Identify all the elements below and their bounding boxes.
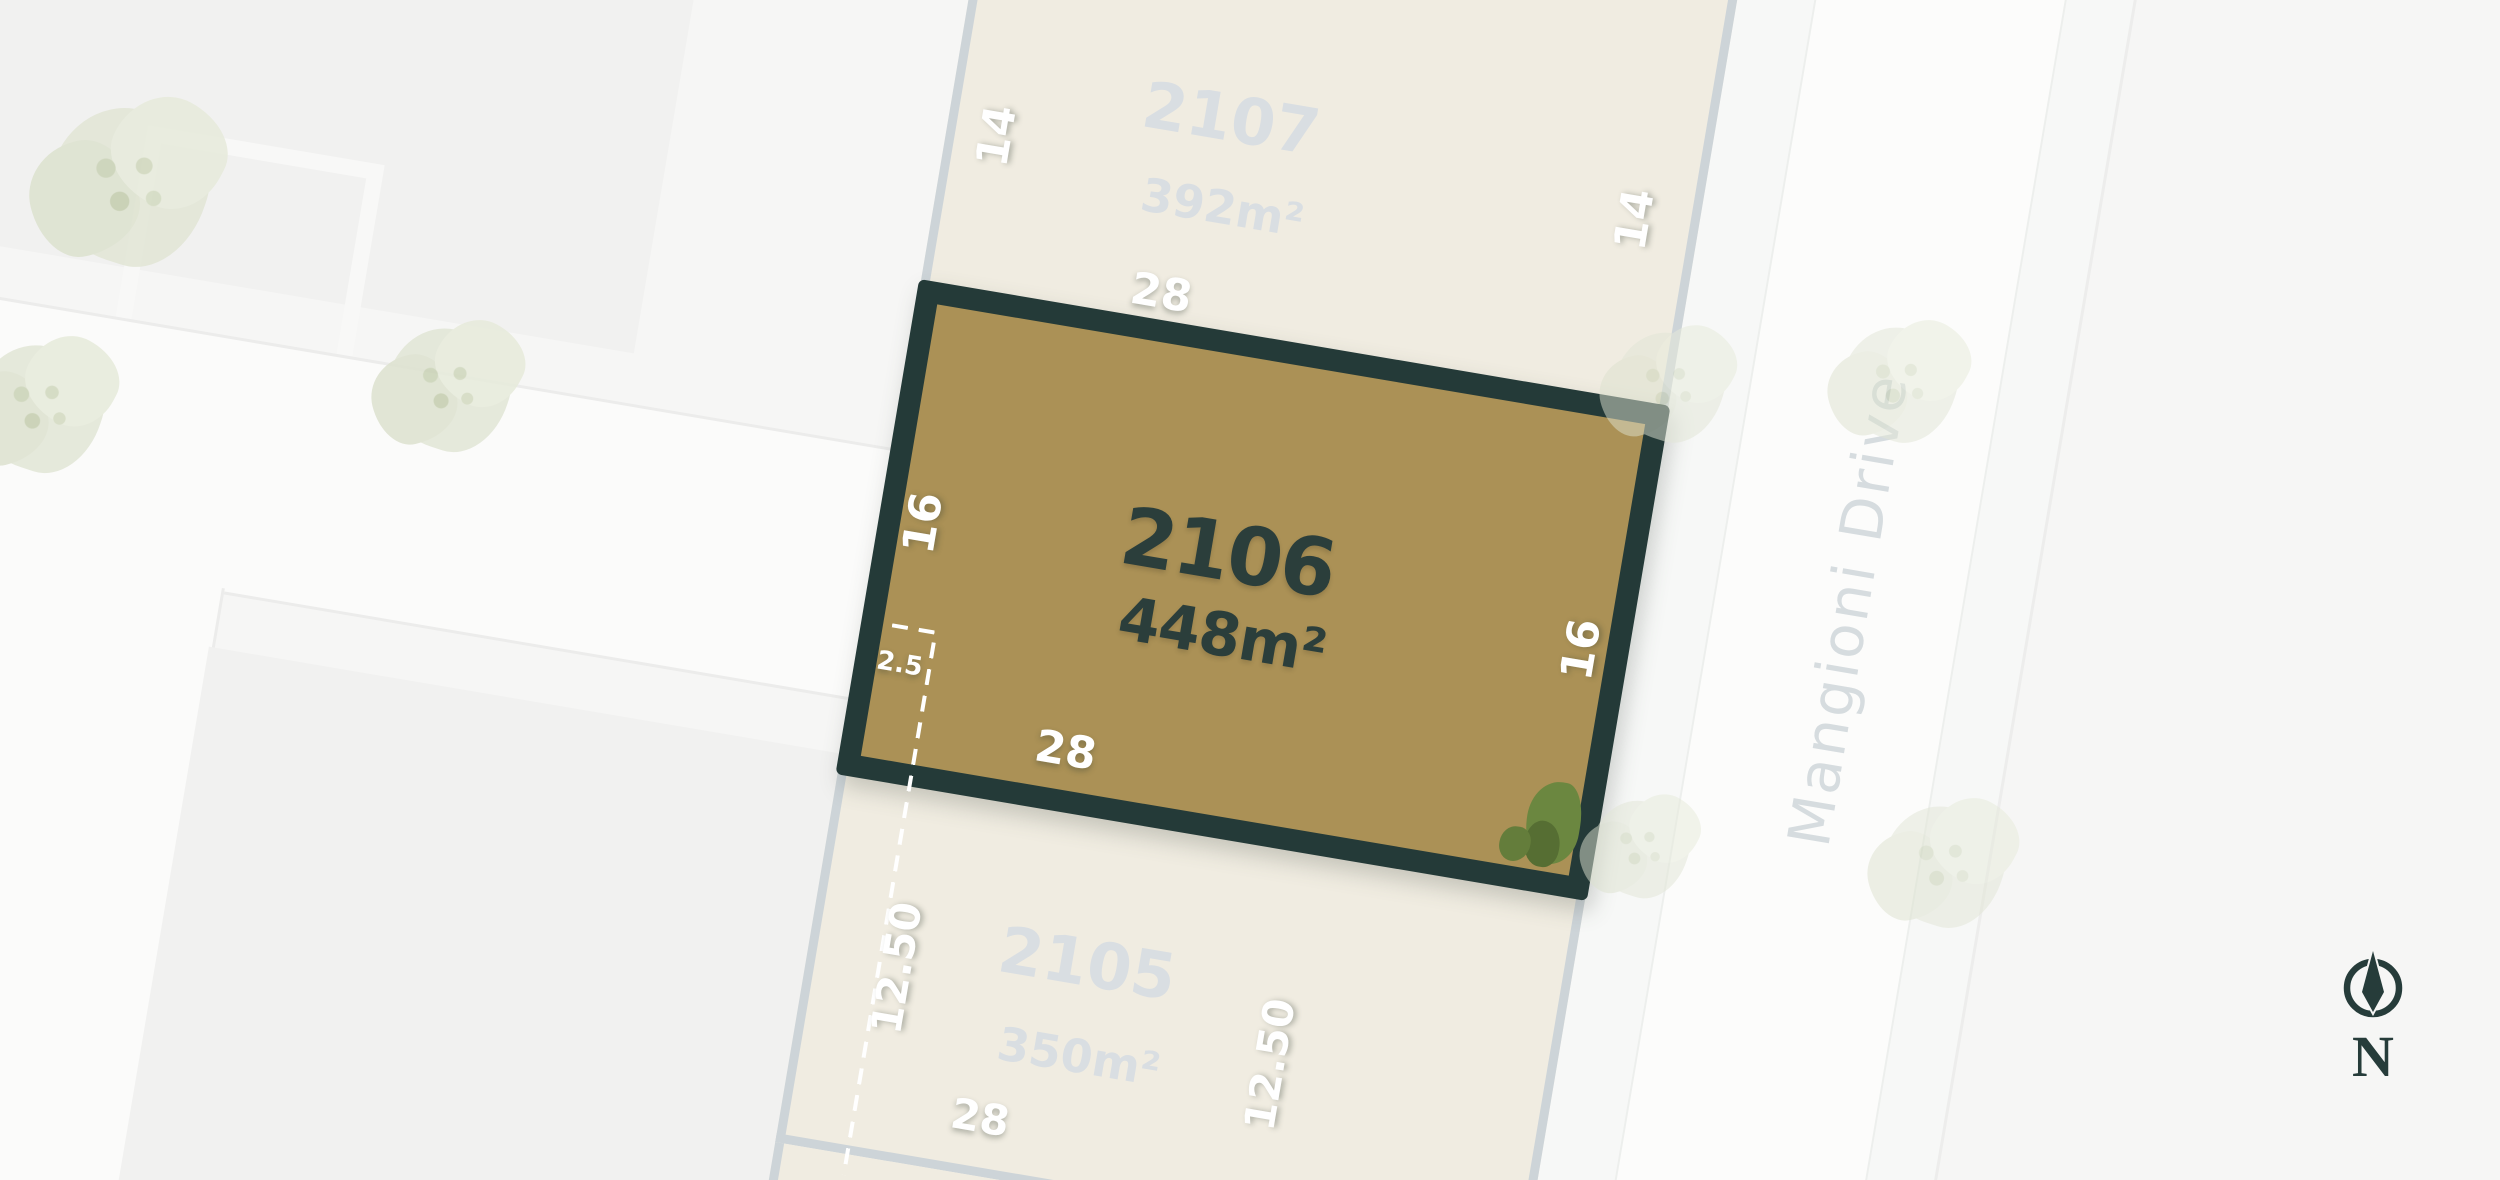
- tree: [1828, 312, 1970, 454]
- easement-dim-label: 2.5: [875, 647, 925, 680]
- tree: [0, 328, 118, 486]
- dim-label: 28: [1032, 724, 1100, 778]
- north-indicator: N: [2318, 948, 2428, 1086]
- dim-label: 14: [970, 102, 1024, 170]
- plan-rotated-group: Mangioni Drive 2107 392m² 14 14 28 2106 …: [0, 0, 2500, 1180]
- tree: [1868, 790, 2018, 940]
- tree: [1580, 788, 1700, 908]
- tree: [372, 312, 524, 464]
- north-arrow-icon: [2318, 948, 2428, 1018]
- tree: [30, 86, 226, 282]
- dim-label: 16: [1555, 616, 1609, 684]
- dim-label: 16: [897, 489, 951, 557]
- dim-label: 28: [1127, 267, 1195, 321]
- tree: [1600, 318, 1736, 454]
- dim-label: 28: [948, 1092, 1013, 1143]
- dim-label: 14: [1608, 186, 1662, 254]
- lot-plan-scene: Mangioni Drive 2107 392m² 14 14 28 2106 …: [0, 0, 2500, 1180]
- north-label: N: [2318, 1028, 2428, 1086]
